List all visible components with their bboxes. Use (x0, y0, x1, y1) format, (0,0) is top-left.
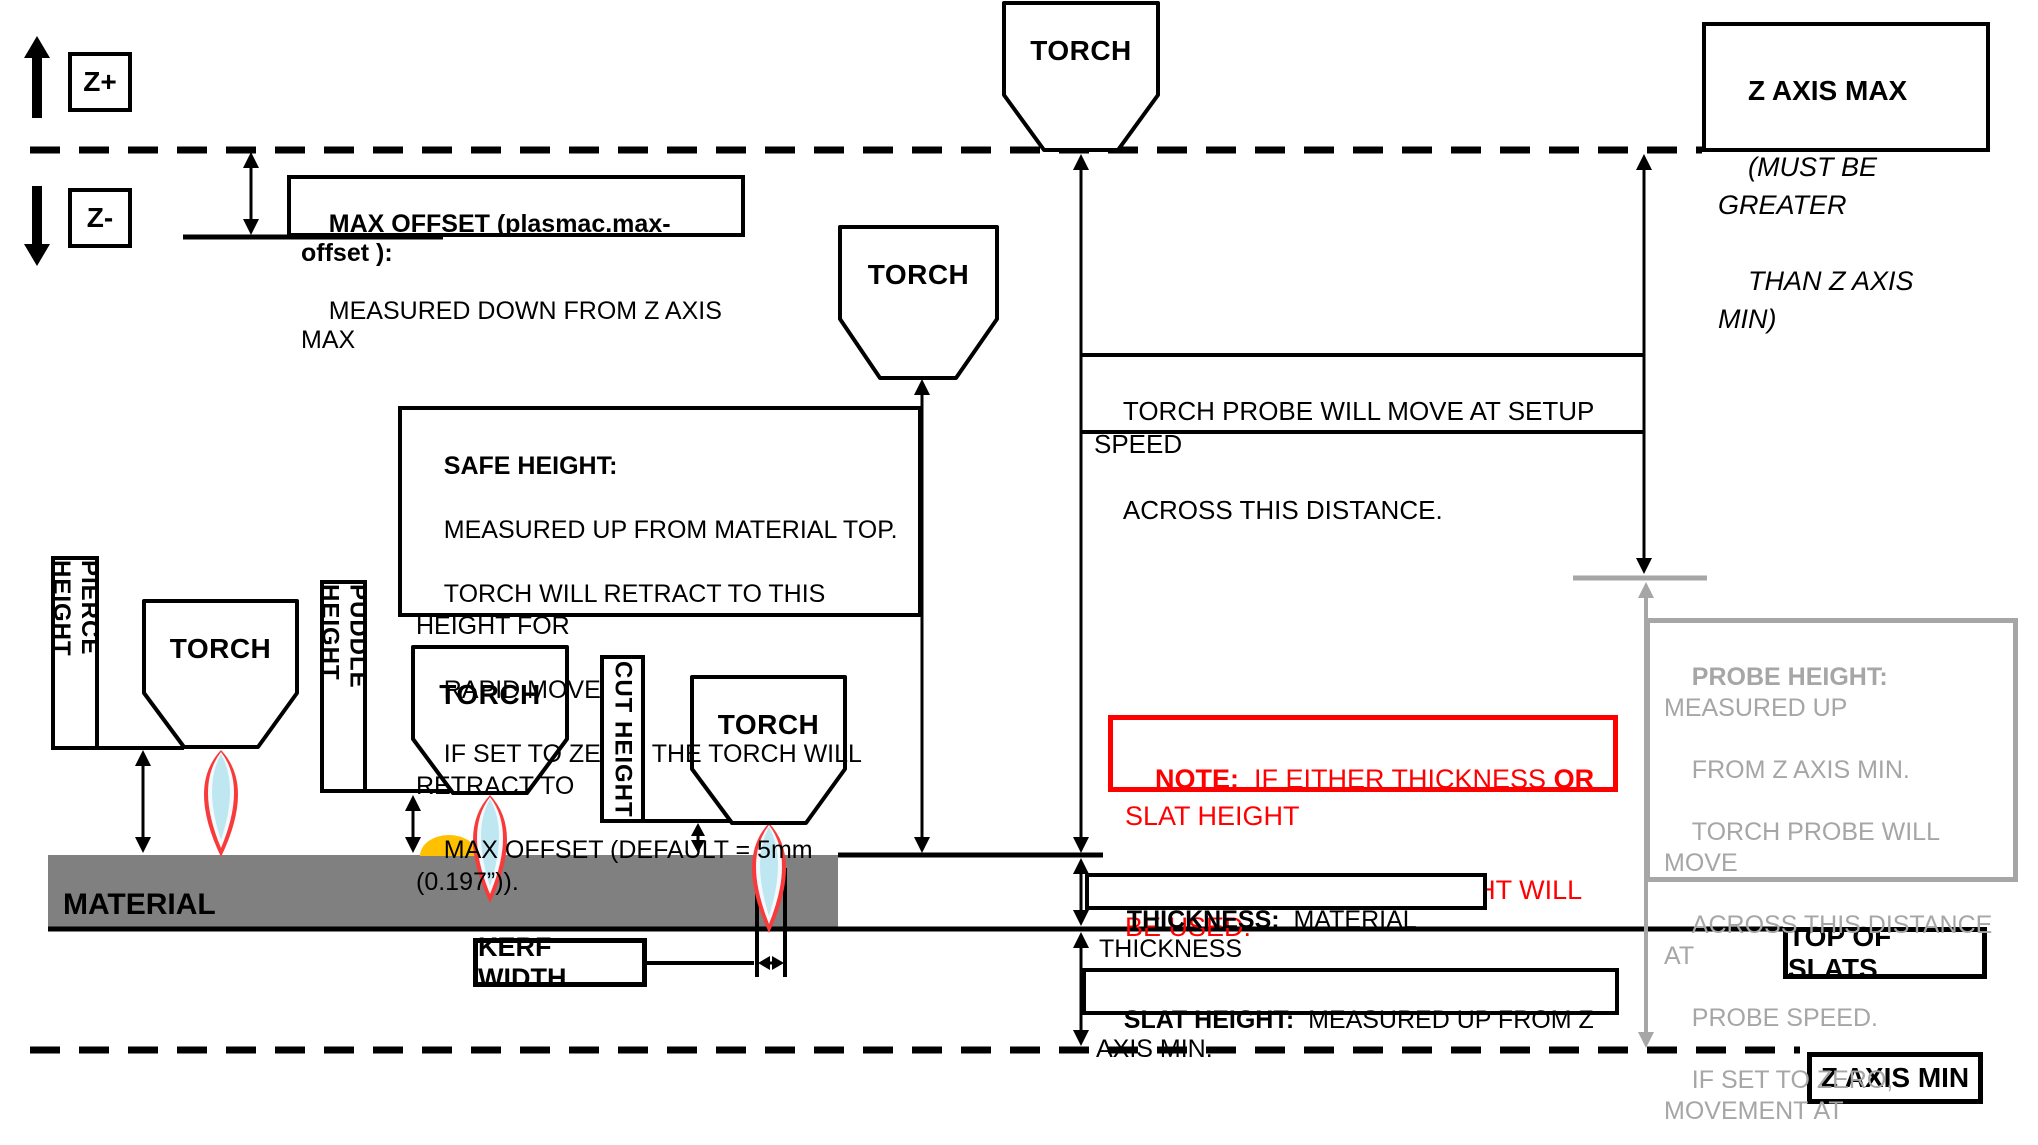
thickness-arrow-up-head (1073, 858, 1089, 874)
max-offset-arrow-up-head (243, 152, 259, 168)
material-label: MATERIAL (63, 888, 216, 922)
safe-height-line3: RAPID MOVES. (444, 676, 625, 704)
probe-height-arrow-up-head (1638, 582, 1654, 598)
safe-height-arrow-up-head (914, 379, 930, 395)
note-box: NOTE: IF EITHER THICKNESS OR SLAT HEIGHT… (1108, 715, 1618, 792)
torch-probe-note-line1: TORCH PROBE WILL MOVE AT SETUP SPEED (1094, 396, 1601, 459)
thickness-box: THICKNESS: MATERIAL THICKNESS (1085, 873, 1487, 910)
probe-height-box: PROBE HEIGHT: MEASURED UP FROM Z AXIS MI… (1645, 618, 2018, 882)
thickness-arrow-down-head (1073, 910, 1089, 926)
probe-height-line3: TORCH PROBE WILL MOVE (1664, 818, 1946, 877)
thickness-bold: THICKNESS: (1127, 906, 1280, 934)
safe-torch-label: TORCH (840, 227, 997, 323)
top-torch-label: TORCH (1004, 3, 1158, 99)
note-bold2: OR (1554, 764, 1595, 794)
torch-probe-note: TORCH PROBE WILL MOVE AT SETUP SPEED ACR… (1094, 362, 1639, 560)
z-plus-arrow (24, 36, 50, 118)
z-plus-box: Z+ (68, 52, 132, 112)
z-axis-max-title: Z AXIS MAX (1748, 75, 1907, 106)
slat-height-arrow-down-head (1073, 1030, 1089, 1046)
pierce-height-label: PIERCE HEIGHT (51, 556, 99, 750)
plasmac-height-diagram: TORCH TORCH TORCH TORCH TORCH Z+ Z- MAX … (0, 0, 2038, 1145)
max-offset-box: MAX OFFSET (plasmac.max-offset ): MEASUR… (287, 175, 745, 237)
probe-height-arrow-down-head (1638, 1032, 1654, 1048)
probe-height-line2: FROM Z AXIS MIN. (1692, 756, 1910, 784)
safe-height-title: SAFE HEIGHT: (444, 452, 618, 480)
safe-height-arrow-down-head (914, 837, 930, 853)
probe-travel-arrow-down-head (1073, 837, 1089, 853)
cut-height-label: CUT HEIGHT (600, 655, 645, 823)
torch-probe-note-line2: ACROSS THIS DISTANCE. (1123, 495, 1443, 525)
z-travel-arrow-down-head (1636, 558, 1652, 574)
slat-height-box: SLAT HEIGHT: MEASURED UP FROM Z AXIS MIN… (1082, 968, 1619, 1015)
kerf-width-box: KERF WIDTH (473, 938, 647, 987)
pierce-height-arrow-up-head (135, 750, 151, 766)
probe-height-bold: PROBE HEIGHT: (1692, 663, 1888, 691)
probe-height-line5: PROBE SPEED. (1692, 1004, 1878, 1032)
slat-height-bold: SLAT HEIGHT: (1124, 1006, 1294, 1034)
z-minus-arrow (24, 186, 50, 266)
pierce-height-arrow-down-head (135, 837, 151, 853)
z-travel-arrow-up-head (1636, 154, 1652, 170)
probe-travel-arrow-up-head (1073, 154, 1089, 170)
note-reg1: IF EITHER THICKNESS (1239, 764, 1554, 794)
z-minus-box: Z- (68, 188, 132, 248)
kerf-arrow-left-head (758, 956, 770, 970)
pierce-torch-label: TORCH (144, 601, 297, 697)
pierce-flame (204, 750, 238, 857)
safe-height-line1: MEASURED UP FROM MATERIAL TOP. (444, 516, 898, 544)
z-axis-max-box: Z AXIS MAX (MUST BE GREATER THAN Z AXIS … (1702, 22, 1990, 152)
puddle-height-label: PUDDLE HEIGHT (320, 580, 367, 793)
slat-height-arrow-up-head (1073, 932, 1089, 948)
kerf-arrow-right-head (772, 956, 784, 970)
safe-height-box: SAFE HEIGHT: MEASURED UP FROM MATERIAL T… (398, 406, 922, 617)
max-offset-arrow-down-head (243, 219, 259, 235)
note-bold1: NOTE: (1155, 764, 1239, 794)
